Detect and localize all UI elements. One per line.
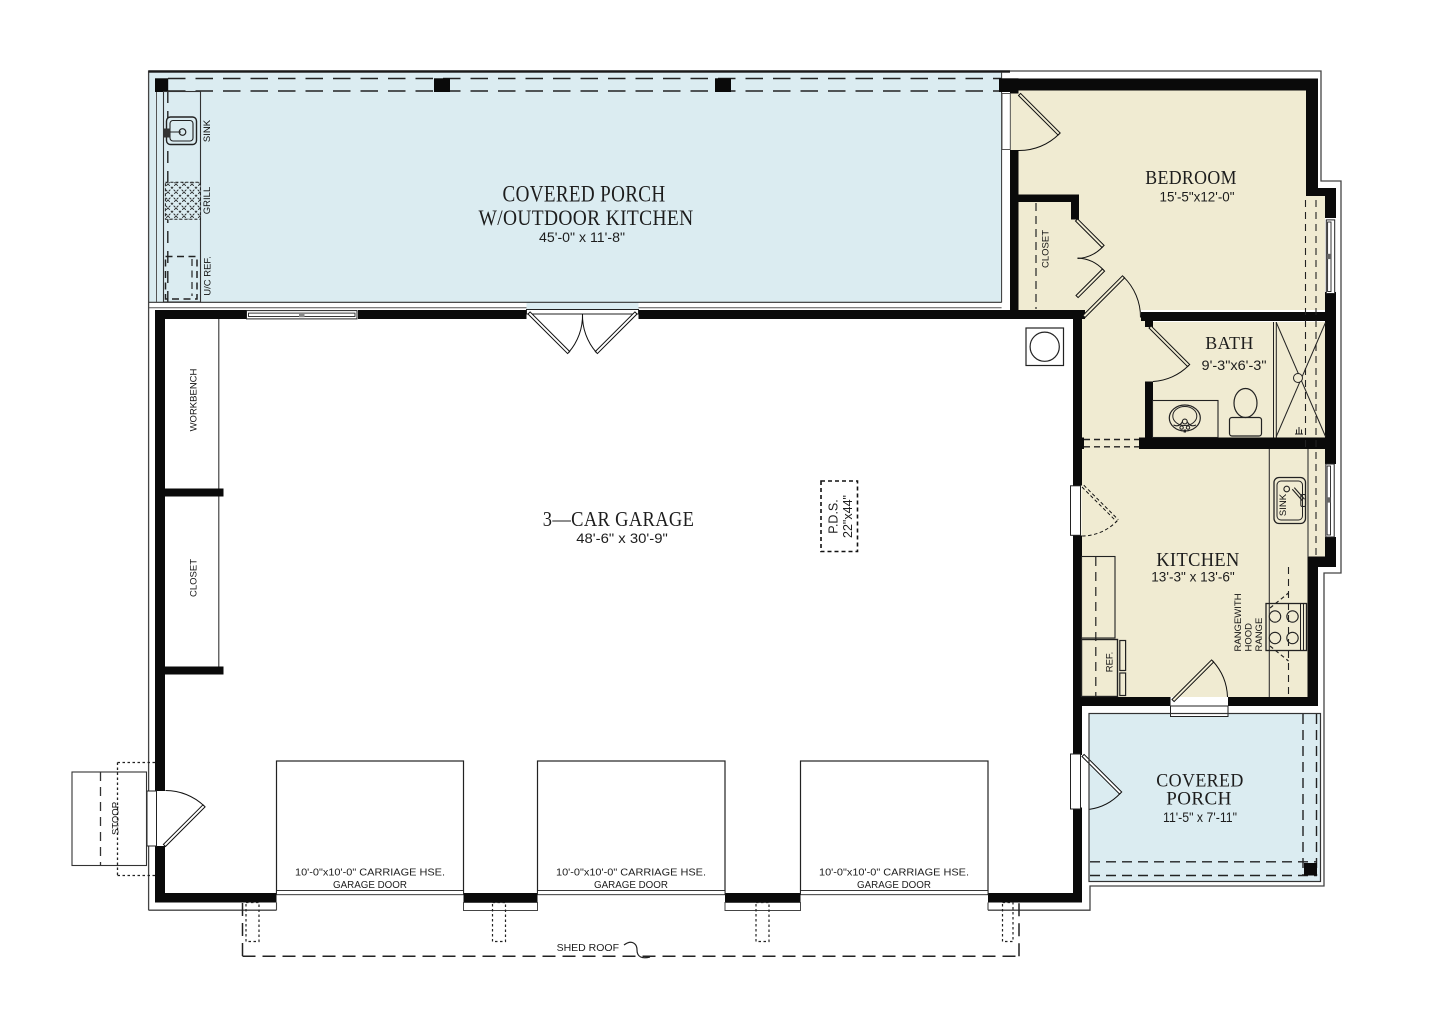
svg-text:CLOSET: CLOSET xyxy=(189,559,200,597)
svg-text:11'-5" x 7'-11": 11'-5" x 7'-11" xyxy=(1163,810,1237,825)
svg-text:CLOSET: CLOSET xyxy=(1041,230,1052,268)
svg-text:9'-3"x6'-3": 9'-3"x6'-3" xyxy=(1202,357,1267,373)
svg-text:GARAGE DOOR: GARAGE DOOR xyxy=(857,879,931,891)
svg-text:SINK: SINK xyxy=(202,119,213,142)
svg-text:GARAGE DOOR: GARAGE DOOR xyxy=(333,879,407,891)
svg-text:GRILL: GRILL xyxy=(202,187,213,214)
svg-text:PORCH: PORCH xyxy=(1166,789,1232,810)
svg-text:WORKBENCH: WORKBENCH xyxy=(189,368,200,431)
svg-text:W/OUTDOOR KITCHEN: W/OUTDOOR KITCHEN xyxy=(479,205,694,230)
svg-text:22"x44": 22"x44" xyxy=(841,495,855,538)
svg-text:BEDROOM: BEDROOM xyxy=(1145,167,1237,189)
svg-text:10'-0"x10'-0" CARRIAGE HSE.: 10'-0"x10'-0" CARRIAGE HSE. xyxy=(556,867,706,879)
svg-text:SINK: SINK xyxy=(1278,493,1289,516)
svg-text:15'-5"x12'-0": 15'-5"x12'-0" xyxy=(1160,189,1235,205)
svg-text:10'-0"x10'-0" CARRIAGE HSE.: 10'-0"x10'-0" CARRIAGE HSE. xyxy=(819,867,969,879)
svg-text:RANGEWITH: RANGEWITH xyxy=(1233,593,1244,651)
svg-text:U/C REF.: U/C REF. xyxy=(203,256,214,296)
svg-text:BATH: BATH xyxy=(1205,333,1254,353)
svg-text:45'-0" x 11'-8": 45'-0" x 11'-8" xyxy=(539,229,625,245)
svg-text:HOOD: HOOD xyxy=(1244,623,1255,652)
svg-text:48'-6" x 30'-9": 48'-6" x 30'-9" xyxy=(576,530,668,546)
svg-text:COVERED PORCH: COVERED PORCH xyxy=(503,182,666,207)
svg-text:P.D.S.: P.D.S. xyxy=(826,499,840,534)
svg-text:10'-0"x10'-0" CARRIAGE HSE.: 10'-0"x10'-0" CARRIAGE HSE. xyxy=(295,867,445,879)
svg-text:STOOP: STOOP xyxy=(111,802,122,835)
svg-text:SHED ROOF: SHED ROOF xyxy=(557,942,619,954)
svg-text:GARAGE DOOR: GARAGE DOOR xyxy=(594,879,668,891)
svg-text:13'-3" x 13'-6": 13'-3" x 13'-6" xyxy=(1151,569,1235,585)
svg-text:RANGE: RANGE xyxy=(1254,618,1265,652)
svg-text:3—CAR GARAGE: 3—CAR GARAGE xyxy=(543,507,695,531)
svg-text:REF.: REF. xyxy=(1105,652,1116,673)
